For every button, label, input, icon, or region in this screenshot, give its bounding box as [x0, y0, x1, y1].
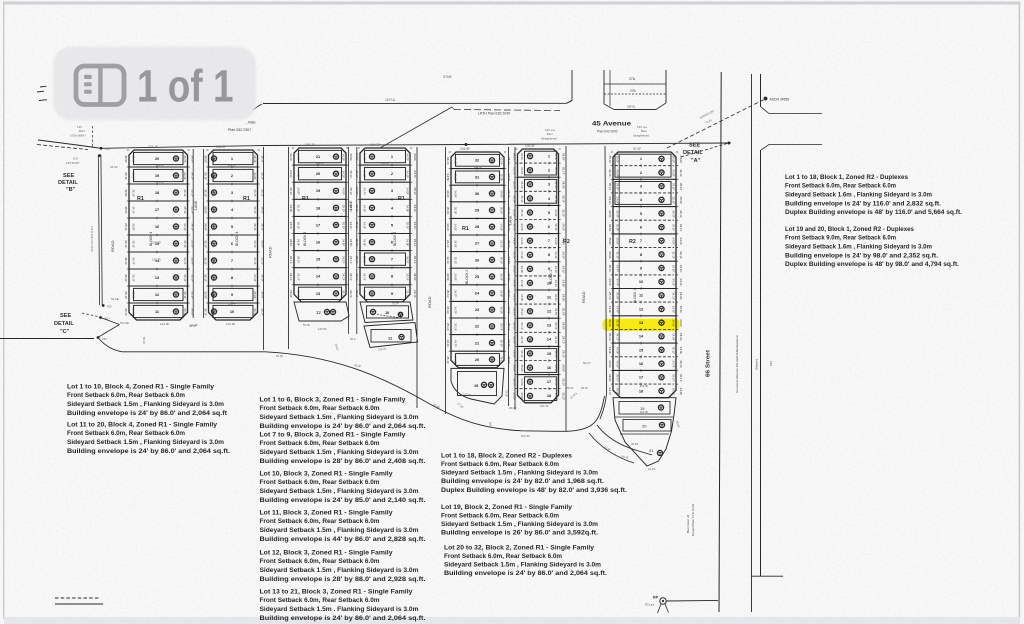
svg-text:Building envelope is 24' by 86: Building envelope is 24' by 86.0' and 2,… [260, 615, 426, 622]
